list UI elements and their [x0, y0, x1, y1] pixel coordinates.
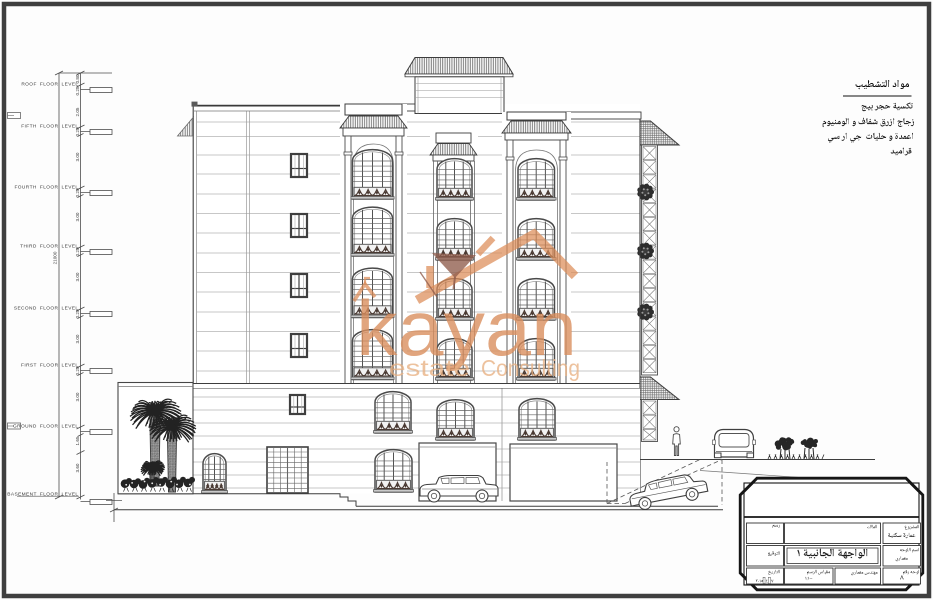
svg-text:FOURTH FLOOR LEVEL: FOURTH FLOOR LEVEL: [14, 185, 78, 191]
svg-text:21000: 21000: [53, 251, 58, 264]
svg-text:3.60: 3.60: [75, 463, 80, 472]
svg-text:3.00: 3.00: [75, 212, 80, 221]
svg-text:FIFTH FLOOR LEVEL: FIFTH FLOOR LEVEL: [21, 124, 78, 130]
svg-text:GROUND FLOOR LEVEL: GROUND FLOOR LEVEL: [13, 424, 78, 430]
svg-text:1.65: 1.65: [75, 436, 80, 445]
svg-text:2.05: 2.05: [75, 107, 80, 116]
svg-text:BASEMENT FLOOR LEVEL: BASEMENT FLOOR LEVEL: [7, 492, 78, 498]
svg-text:FIRST FLOOR LEVEL: FIRST FLOOR LEVEL: [21, 363, 79, 369]
svg-text:Consulting: Consulting: [481, 355, 580, 381]
svg-text:ROOF FLOOR LEVEL: ROOF FLOOR LEVEL: [21, 82, 78, 88]
svg-text:3.00: 3.00: [75, 152, 80, 161]
svg-text:3.00: 3.00: [75, 392, 80, 401]
svg-text:THIRD FLOOR LEVEL: THIRD FLOOR LEVEL: [20, 244, 78, 250]
svg-text:SECOND FLOOR LEVEL: SECOND FLOOR LEVEL: [14, 306, 79, 312]
svg-text:estate: estate: [389, 355, 470, 381]
svg-text:3.00: 3.00: [75, 272, 80, 281]
svg-text:3.00: 3.00: [75, 334, 80, 343]
